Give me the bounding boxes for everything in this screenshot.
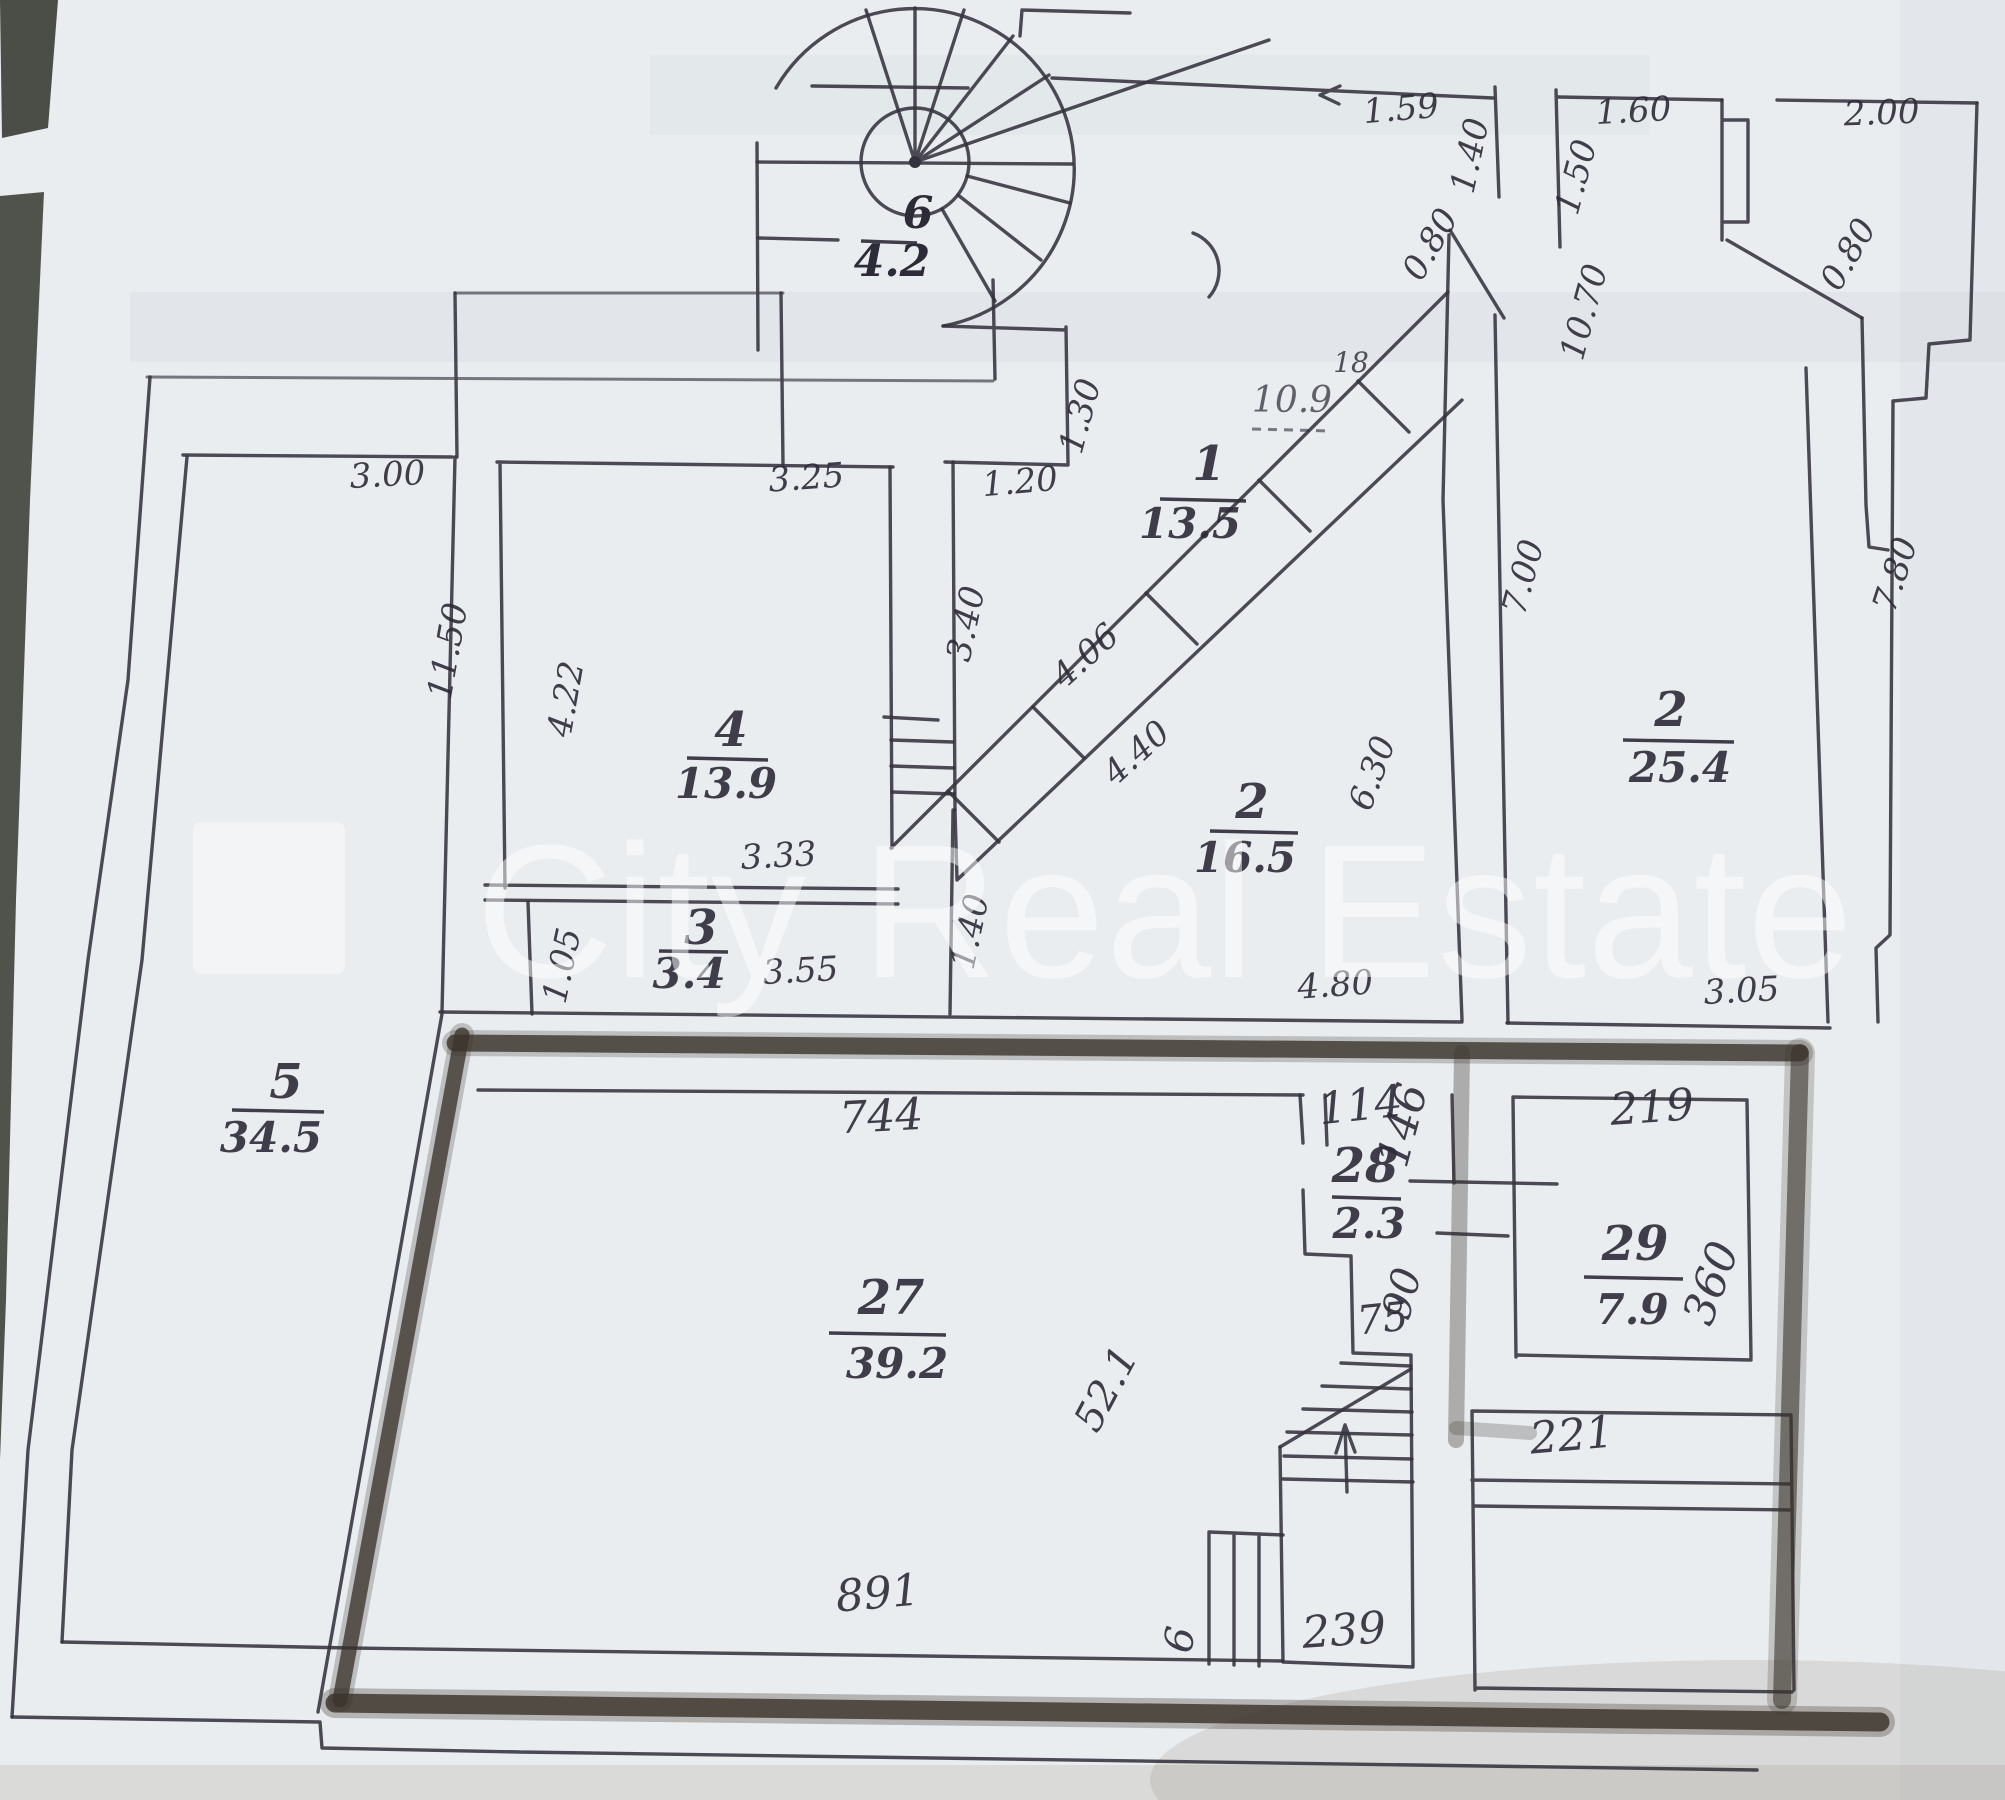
room-29-area: 7.9 [1595,1285,1668,1334]
room-2-right-number: 2 [1653,682,1687,738]
floorplan-photo: 1.59 1.40 1.60 1.50 2.00 0.80 0.80 10.70… [0,0,2005,1800]
room-4-number: 4 [714,702,747,758]
room-6-number: 6 [903,188,934,239]
dim-219: 219 [1607,1079,1695,1136]
dim-2-00: 2.00 [1842,92,1920,135]
room-28-area: 2.3 [1331,1199,1405,1248]
dim-1-20: 1.20 [981,459,1060,505]
room-28-number: 28 [1331,1138,1399,1194]
room-4-area: 13.9 [675,759,777,808]
dim-239: 239 [1299,1602,1387,1659]
dim-3-25: 3.25 [767,455,845,500]
paper-right-shade [1900,0,2005,1800]
floorplan-svg: 1.59 1.40 1.60 1.50 2.00 0.80 0.80 10.70… [0,0,2005,1800]
room-5-number: 5 [269,1054,302,1110]
scan-band [650,55,1650,135]
marker-faded-line [1456,1053,1462,1440]
watermark-text: City Real Estate [476,806,1854,1018]
room-6-area: 4.2 [854,236,931,287]
room-1-area: 13.5 [1139,499,1241,548]
room-5-area: 34.5 [220,1113,322,1162]
room-27-number: 27 [857,1270,925,1326]
room-2-right-area: 25.4 [1628,743,1731,792]
room-27-area: 39.2 [846,1339,948,1388]
annotation-superscript: 18 [1333,346,1369,379]
watermark-logo [193,822,345,974]
dim-1-59: 1.59 [1362,86,1441,132]
room-29-number: 29 [1601,1216,1669,1272]
room-1-number: 1 [1192,436,1225,492]
dim-891: 891 [834,1564,922,1622]
dim-3-00: 3.00 [349,453,427,497]
dim-221: 221 [1527,1406,1616,1464]
dim-744: 744 [838,1089,925,1144]
annotation-value: 10.9 [1252,380,1332,421]
dim-1-60: 1.60 [1595,89,1673,133]
